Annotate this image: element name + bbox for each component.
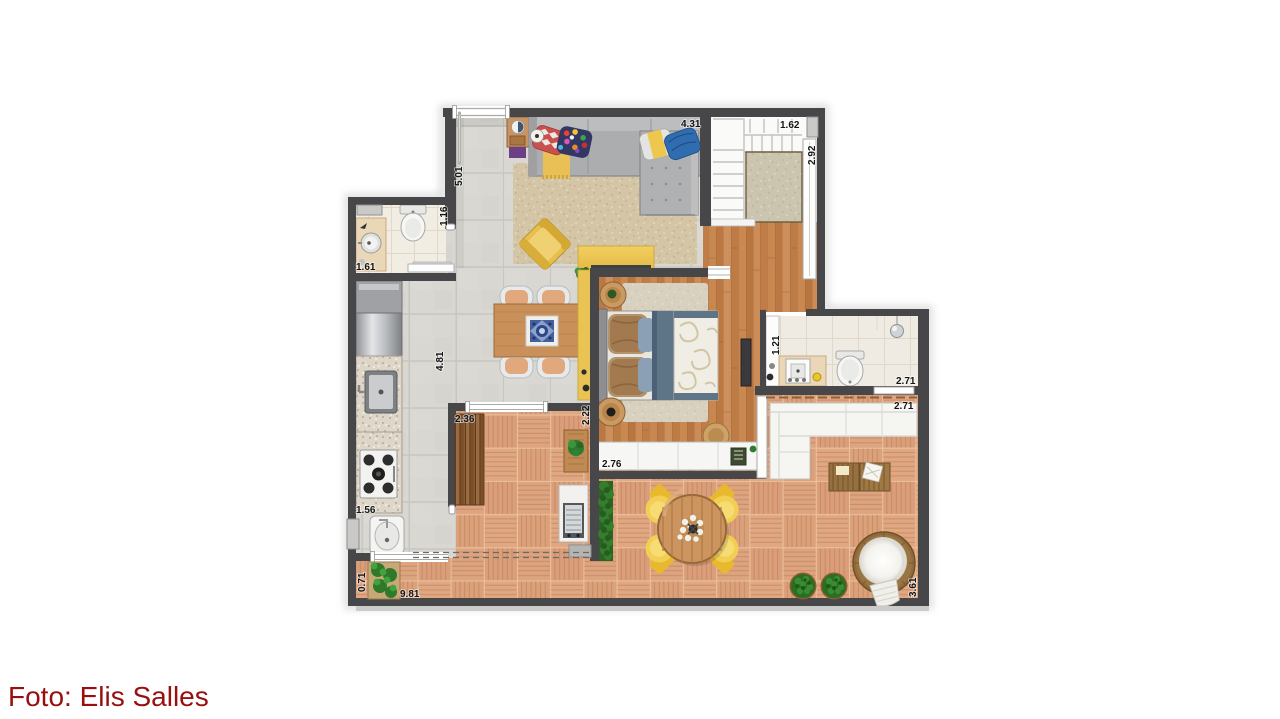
svg-text:2.76: 2.76 — [602, 459, 622, 470]
svg-text:2.36: 2.36 — [455, 414, 475, 425]
svg-text:1.62: 1.62 — [780, 120, 800, 131]
svg-text:2.92: 2.92 — [807, 145, 818, 165]
svg-text:1.61: 1.61 — [356, 262, 376, 273]
svg-text:1.21: 1.21 — [771, 335, 782, 355]
svg-text:0.71: 0.71 — [357, 572, 368, 592]
svg-text:1.56: 1.56 — [356, 505, 376, 516]
svg-text:4.81: 4.81 — [435, 351, 446, 371]
svg-text:9.81: 9.81 — [400, 589, 420, 600]
svg-text:2.71: 2.71 — [894, 401, 914, 412]
svg-text:3.61: 3.61 — [908, 577, 919, 597]
svg-text:Foto: Elis Salles: Foto: Elis Salles — [8, 681, 209, 712]
svg-text:5.01: 5.01 — [454, 166, 465, 186]
svg-text:2.71: 2.71 — [896, 376, 916, 387]
svg-text:2.22: 2.22 — [581, 405, 592, 425]
svg-text:1.16: 1.16 — [439, 206, 450, 226]
svg-text:4.31: 4.31 — [681, 119, 701, 130]
